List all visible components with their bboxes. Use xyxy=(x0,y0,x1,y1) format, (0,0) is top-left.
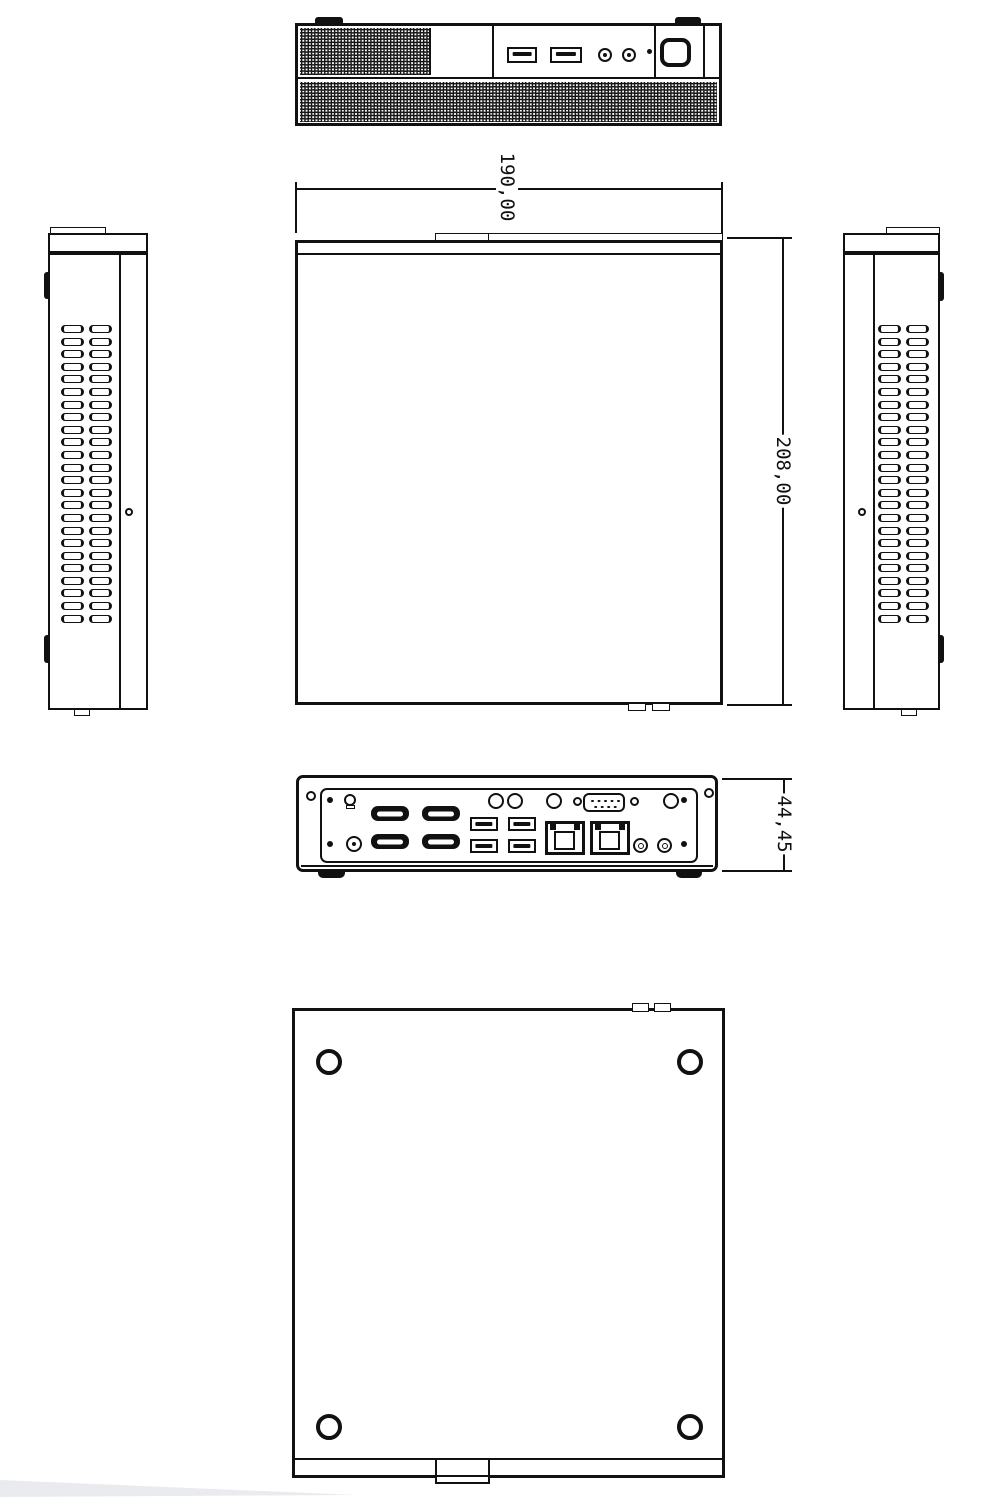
vent-slot-icon xyxy=(61,413,84,421)
serial-port-icon xyxy=(583,793,625,812)
vent-slot-icon xyxy=(906,527,929,535)
jack-dot-icon xyxy=(352,842,356,846)
kensington-lock-icon xyxy=(346,805,355,809)
side-bump-icon xyxy=(939,635,944,663)
vent-row xyxy=(878,602,929,610)
side-bump-icon xyxy=(44,635,49,663)
vent-row xyxy=(61,564,112,572)
vent-slot-icon xyxy=(878,615,901,623)
vent-slot-icon xyxy=(89,527,112,535)
vent-slot-icon xyxy=(906,589,929,597)
usb-port-icon xyxy=(470,817,498,831)
vent-slot-icon xyxy=(906,363,929,371)
panel-divider xyxy=(298,77,719,79)
vent-row xyxy=(61,552,112,560)
vent-slot-icon xyxy=(878,602,901,610)
vent-slot-icon xyxy=(61,489,84,497)
vent-slot-icon xyxy=(89,451,112,459)
usb-port-icon xyxy=(550,47,582,63)
vent-slot-icon xyxy=(89,401,112,409)
vent-slot-icon xyxy=(906,602,929,610)
vent-slot-icon xyxy=(61,451,84,459)
hdmi-port-icon xyxy=(422,806,460,821)
front-latch-tab xyxy=(435,1458,490,1484)
rj45-latch-icon xyxy=(595,824,601,830)
vent-row xyxy=(61,501,112,509)
vent-slot-icon xyxy=(89,476,112,484)
vent-row xyxy=(878,589,929,597)
panel-seam-line xyxy=(119,255,121,708)
front-bottom-grille-icon xyxy=(300,82,717,122)
latch-line xyxy=(437,1475,488,1477)
usb-port-icon xyxy=(470,839,498,853)
screw-hole-icon xyxy=(858,508,866,516)
drawing-canvas: 190,00 208,00 xyxy=(0,0,992,1500)
vent-slot-icon xyxy=(878,552,901,560)
vent-slot-icon xyxy=(61,602,84,610)
vent-slot-icon xyxy=(878,363,901,371)
vent-row xyxy=(878,363,929,371)
vent-slot-icon xyxy=(906,514,929,522)
usb-port-icon xyxy=(508,817,536,831)
rj45-latch-icon xyxy=(550,824,556,830)
chassis-bottom-line xyxy=(301,865,713,867)
vent-row xyxy=(61,426,112,434)
dc-jack-icon xyxy=(346,836,362,852)
page-curl-wedge xyxy=(0,1480,356,1497)
vent-slot-icon xyxy=(906,615,929,623)
vent-row xyxy=(61,375,112,383)
vent-slot-icon xyxy=(89,539,112,547)
hdmi-port-icon xyxy=(371,806,409,821)
vent-slot-icon xyxy=(906,388,929,396)
bottom-tab-icon xyxy=(628,703,646,711)
vent-row xyxy=(61,350,112,358)
vent-slot-icon xyxy=(89,338,112,346)
vent-slot-icon xyxy=(61,350,84,358)
vent-slot-icon xyxy=(89,375,112,383)
vent-slot-icon xyxy=(906,489,929,497)
vent-slot-icon xyxy=(878,325,901,333)
vent-slot-icon xyxy=(61,501,84,509)
vent-slot-icon xyxy=(89,589,112,597)
vent-row xyxy=(878,552,929,560)
power-button-icon xyxy=(660,38,691,67)
vent-row xyxy=(878,438,929,446)
vent-slot-icon xyxy=(89,363,112,371)
jack-dot-icon xyxy=(627,53,631,57)
vent-row xyxy=(878,426,929,434)
vent-row xyxy=(61,514,112,522)
vent-slot-icon xyxy=(878,464,901,472)
vent-row xyxy=(61,388,112,396)
vent-slot-icon xyxy=(89,602,112,610)
vent-slot-icon xyxy=(906,552,929,560)
vent-row xyxy=(878,464,929,472)
dimension-extension-line xyxy=(722,870,792,872)
foot-icon xyxy=(74,709,90,716)
rubber-foot-icon xyxy=(318,869,345,878)
cover-edge-line xyxy=(298,253,720,255)
vent-row xyxy=(878,375,929,383)
hdmi-port-icon xyxy=(371,834,409,849)
panel-divider xyxy=(703,26,705,77)
vent-slot-icon xyxy=(906,413,929,421)
top-view xyxy=(295,233,723,713)
vent-slot-icon xyxy=(89,388,112,396)
hdmi-slot-icon xyxy=(428,839,454,844)
vent-row xyxy=(878,350,929,358)
vent-row xyxy=(878,564,929,572)
vent-slot-icon xyxy=(61,552,84,560)
vent-slot-icon xyxy=(89,325,112,333)
vent-row xyxy=(878,577,929,585)
bottom-view xyxy=(292,1008,725,1478)
vent-row xyxy=(61,476,112,484)
vent-row xyxy=(61,539,112,547)
vent-slot-icon xyxy=(878,564,901,572)
vent-slot-icon xyxy=(61,464,84,472)
antenna-hole-icon xyxy=(507,793,523,809)
corner-screw-icon xyxy=(704,788,714,798)
vent-slot-icon xyxy=(61,539,84,547)
rj45-inner-icon xyxy=(599,831,620,850)
vent-row xyxy=(61,325,112,333)
front-grille-icon xyxy=(300,28,431,75)
front-view xyxy=(295,23,722,126)
vent-slot-icon xyxy=(61,577,84,585)
side-bump-icon xyxy=(939,272,944,301)
rj45-inner-icon xyxy=(554,831,575,850)
rj45-latch-icon xyxy=(619,824,625,830)
vent-slot-icon xyxy=(878,501,901,509)
dimension-label-width: 190,00 xyxy=(496,151,518,224)
panel-divider xyxy=(654,26,656,77)
vent-row xyxy=(878,539,929,547)
vent-slot-icon xyxy=(906,401,929,409)
vent-slot-icon xyxy=(906,564,929,572)
panel-divider xyxy=(492,26,494,77)
usb-tongue-icon xyxy=(513,822,530,826)
vent-slot-icon xyxy=(878,413,901,421)
vent-slot-icon xyxy=(906,501,929,509)
vent-slot-icon xyxy=(61,426,84,434)
chassis-tab-icon xyxy=(315,17,343,24)
chassis-tab-icon xyxy=(654,1003,671,1012)
vent-row xyxy=(878,413,929,421)
vent-slot-icon xyxy=(878,426,901,434)
audio-jack-icon xyxy=(633,838,648,853)
vent-slot-icon xyxy=(878,489,901,497)
antenna-hole-icon xyxy=(488,793,504,809)
vent-slot-icon xyxy=(89,413,112,421)
vent-row xyxy=(61,401,112,409)
vent-slot-icon xyxy=(906,438,929,446)
usb-tongue-icon xyxy=(513,844,530,848)
audio-jack-icon xyxy=(622,48,636,62)
ethernet-port-icon xyxy=(590,821,630,855)
vent-slot-icon xyxy=(878,476,901,484)
screw-hole-icon xyxy=(125,508,133,516)
vent-row xyxy=(878,401,929,409)
serial-screw-icon xyxy=(630,797,639,806)
vent-row xyxy=(61,363,112,371)
vent-slot-icon xyxy=(906,338,929,346)
hdmi-port-icon xyxy=(422,834,460,849)
vent-row xyxy=(61,615,112,623)
vent-slot-icon xyxy=(89,464,112,472)
chassis-tab-icon xyxy=(675,17,701,24)
mounting-hole-icon xyxy=(677,1049,703,1075)
foot-icon xyxy=(901,709,917,716)
vent-slot-icon xyxy=(61,375,84,383)
bottom-tab-icon xyxy=(652,703,670,711)
vent-row xyxy=(61,589,112,597)
usb-tongue-icon xyxy=(556,52,576,56)
vent-slot-icon xyxy=(906,577,929,585)
vent-row xyxy=(878,489,929,497)
vent-slot-icon xyxy=(878,338,901,346)
vent-slot-icon xyxy=(61,338,84,346)
panel-seam-line xyxy=(873,255,875,708)
vent-slot-icon xyxy=(89,426,112,434)
vent-slot-icon xyxy=(61,615,84,623)
vent-slot-icon xyxy=(878,539,901,547)
dimension-extension-line xyxy=(721,182,723,233)
dimension-label-depth: 208,00 xyxy=(772,435,794,508)
vent-row xyxy=(61,577,112,585)
jack-ring-icon xyxy=(638,843,644,849)
vent-slot-icon xyxy=(61,476,84,484)
vent-slot-icon xyxy=(906,464,929,472)
vent-row xyxy=(61,338,112,346)
usb-tongue-icon xyxy=(513,52,532,56)
vent-row xyxy=(61,527,112,535)
screw-dot-icon xyxy=(681,797,687,803)
vent-slot-icon xyxy=(61,401,84,409)
dimension-label-rear-height: 44,45 xyxy=(773,793,795,854)
audio-jack-icon xyxy=(657,838,672,853)
usb-port-icon xyxy=(508,839,536,853)
vent-slot-icon xyxy=(878,375,901,383)
vent-row xyxy=(878,514,929,522)
vent-slot-icon xyxy=(878,388,901,396)
hdmi-slot-icon xyxy=(377,839,403,844)
vent-slot-icon xyxy=(61,527,84,535)
serial-screw-icon xyxy=(573,797,582,806)
dimension-extension-line xyxy=(295,182,297,233)
vent-slot-icon xyxy=(878,577,901,585)
jack-ring-icon xyxy=(662,843,668,849)
vent-slot-icon xyxy=(89,489,112,497)
vent-slot-icon xyxy=(89,564,112,572)
vent-row xyxy=(878,501,929,509)
vent-slot-icon xyxy=(878,401,901,409)
mounting-hole-icon xyxy=(316,1049,342,1075)
rear-io-panel xyxy=(320,788,698,863)
vent-slot-icon xyxy=(906,426,929,434)
antenna-hole-icon xyxy=(546,793,562,809)
vent-row xyxy=(878,338,929,346)
vent-row xyxy=(61,489,112,497)
left-side-view xyxy=(48,233,148,716)
vent-slot-icon xyxy=(89,438,112,446)
side-top-cap xyxy=(843,233,940,253)
vent-row xyxy=(878,325,929,333)
vent-row xyxy=(878,476,929,484)
vent-slot-icon xyxy=(878,514,901,522)
rj45-latch-icon xyxy=(574,824,580,830)
vent-slot-icon xyxy=(878,438,901,446)
chassis-tab-icon xyxy=(632,1003,649,1012)
vent-slot-icon xyxy=(906,350,929,358)
vent-row xyxy=(61,438,112,446)
side-vent-grid xyxy=(61,325,112,627)
usb-tongue-icon xyxy=(475,822,492,826)
vent-slot-icon xyxy=(89,501,112,509)
side-bump-icon xyxy=(44,272,49,299)
vent-slot-icon xyxy=(61,438,84,446)
vent-slot-icon xyxy=(906,325,929,333)
vent-row xyxy=(61,464,112,472)
audio-jack-icon xyxy=(598,48,612,62)
vent-slot-icon xyxy=(906,451,929,459)
power-led-icon xyxy=(647,49,652,54)
right-side-view xyxy=(843,233,940,716)
vent-slot-icon xyxy=(906,375,929,383)
screw-dot-icon xyxy=(327,797,333,803)
vent-slot-icon xyxy=(89,615,112,623)
vent-row xyxy=(61,602,112,610)
vent-row xyxy=(878,615,929,623)
vent-row xyxy=(878,451,929,459)
rubber-foot-icon xyxy=(676,869,702,878)
vent-row xyxy=(61,451,112,459)
vent-slot-icon xyxy=(878,451,901,459)
antenna-hole-icon xyxy=(663,793,679,809)
vent-slot-icon xyxy=(61,514,84,522)
vent-slot-icon xyxy=(878,350,901,358)
screw-dot-icon xyxy=(327,841,333,847)
rear-view xyxy=(296,775,718,872)
side-top-cap xyxy=(48,233,148,253)
jack-dot-icon xyxy=(603,53,607,57)
vent-row xyxy=(878,388,929,396)
vent-slot-icon xyxy=(61,325,84,333)
vent-slot-icon xyxy=(61,564,84,572)
vent-slot-icon xyxy=(878,527,901,535)
serial-pins-icon xyxy=(591,800,594,803)
vent-row xyxy=(61,413,112,421)
side-vent-grid xyxy=(878,325,929,627)
vent-slot-icon xyxy=(89,552,112,560)
screw-dot-icon xyxy=(681,841,687,847)
vent-slot-icon xyxy=(89,350,112,358)
usb-port-icon xyxy=(507,47,537,63)
vent-slot-icon xyxy=(878,589,901,597)
mounting-hole-icon xyxy=(677,1414,703,1440)
vent-slot-icon xyxy=(61,589,84,597)
vent-slot-icon xyxy=(61,363,84,371)
mounting-hole-icon xyxy=(316,1414,342,1440)
vent-row xyxy=(878,527,929,535)
corner-screw-icon xyxy=(306,791,316,801)
hdmi-slot-icon xyxy=(377,811,403,816)
top-cover xyxy=(295,240,723,705)
dimension-extension-line xyxy=(722,778,792,780)
ethernet-port-icon xyxy=(545,821,585,855)
usb-tongue-icon xyxy=(475,844,492,848)
vent-slot-icon xyxy=(89,514,112,522)
front-strip-line xyxy=(295,1458,722,1460)
vent-slot-icon xyxy=(89,577,112,585)
hdmi-slot-icon xyxy=(428,811,454,816)
vent-slot-icon xyxy=(61,388,84,396)
vent-slot-icon xyxy=(906,476,929,484)
vent-slot-icon xyxy=(906,539,929,547)
